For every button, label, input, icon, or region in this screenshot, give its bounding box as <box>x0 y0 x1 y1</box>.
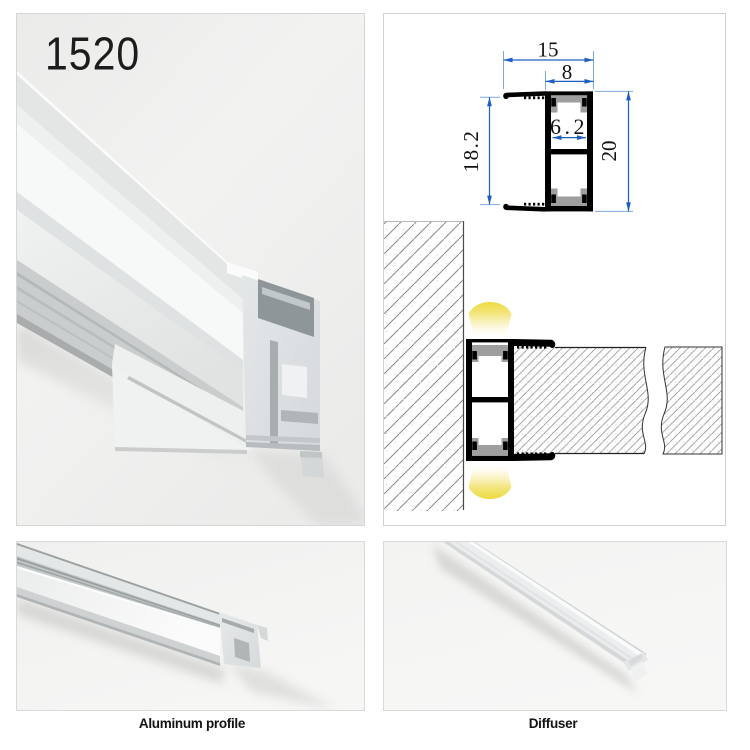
svg-text:8: 8 <box>562 60 573 84</box>
svg-text:15: 15 <box>538 38 559 62</box>
svg-text:6.2: 6.2 <box>550 114 588 139</box>
svg-text:18.2: 18.2 <box>459 130 483 173</box>
svg-text:20: 20 <box>597 141 621 162</box>
